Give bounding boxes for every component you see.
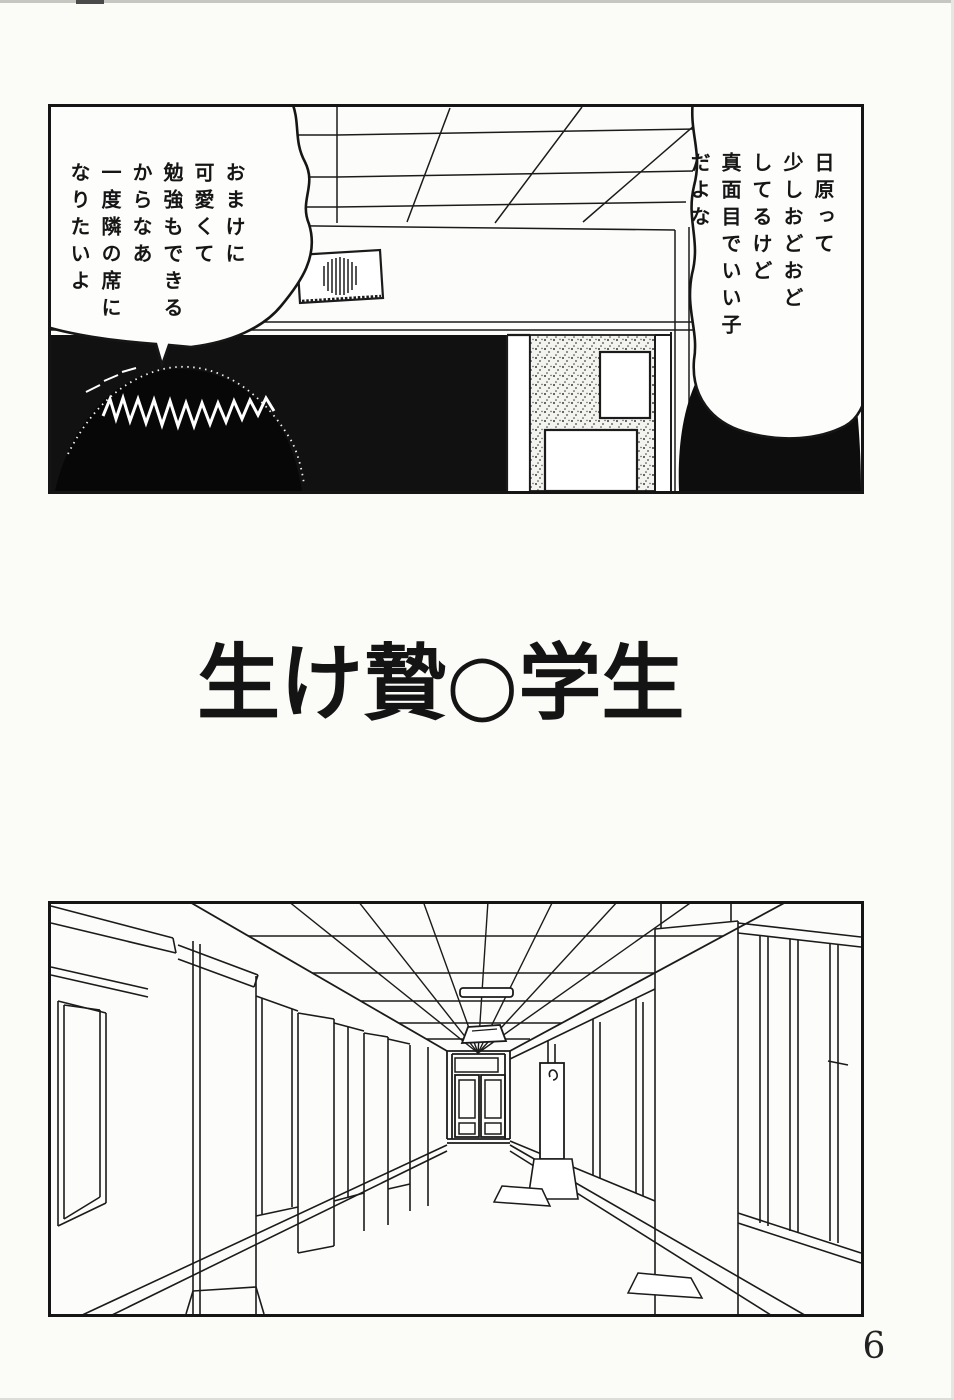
classroom-door xyxy=(507,332,671,491)
chapter-title: 生け贄○学生 xyxy=(197,642,684,725)
manga-page: 日原って 少しおどおど してるけど 真面目でいい子 だよな おまけに 可愛くて … xyxy=(0,0,954,1400)
bubble-text-left: おまけに 可愛くて 勉強もできる からなあ 一度隣の席に なりたいよ xyxy=(63,162,249,372)
bubble-text-right: 日原って 少しおどおど してるけど 真面目でいい子 だよな xyxy=(683,152,838,412)
hallway-art xyxy=(48,901,864,1317)
panel-hallway xyxy=(48,901,864,1317)
door-window xyxy=(600,352,650,418)
scan-edge-mark xyxy=(76,0,104,4)
panel-classroom: 日原って 少しおどおど してるけど 真面目でいい子 だよな おまけに 可愛くて … xyxy=(48,104,864,494)
page-number: 6 xyxy=(854,1326,894,1367)
door-panel xyxy=(545,430,637,491)
scan-edge-top xyxy=(0,0,954,3)
